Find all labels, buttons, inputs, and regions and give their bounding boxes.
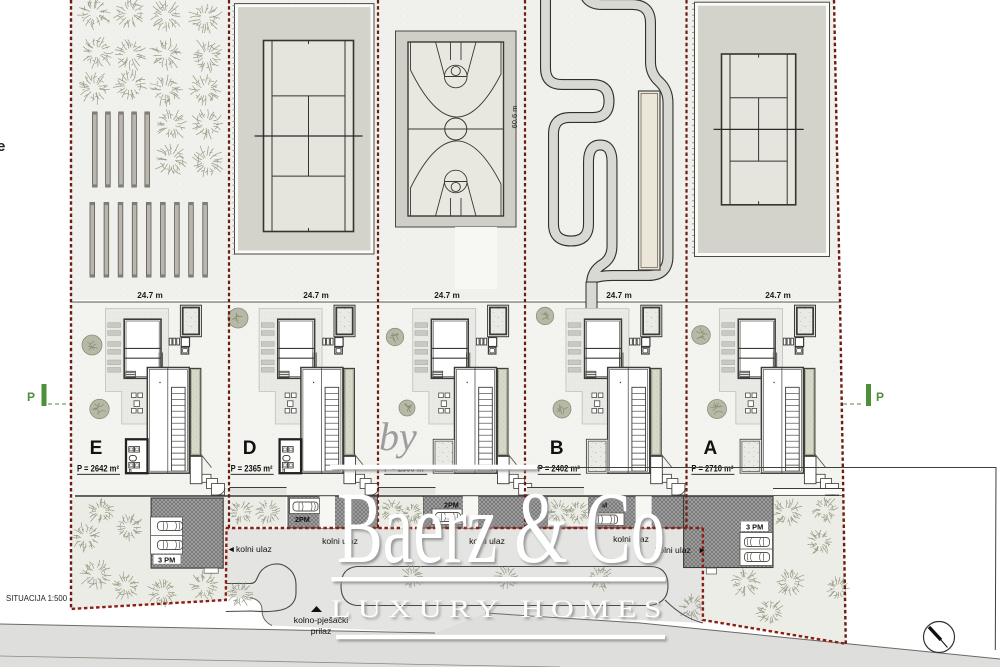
- svg-text:24.7 m: 24.7 m: [765, 291, 791, 300]
- svg-text:P: P: [27, 390, 35, 404]
- svg-text:◄: ◄: [227, 544, 236, 554]
- svg-text:SITUACIJA 1:500: SITUACIJA 1:500: [6, 594, 68, 603]
- svg-text:n: n: [282, 468, 285, 474]
- svg-text:LUXURY HOMES: LUXURY HOMES: [331, 594, 669, 623]
- svg-text:24.7 m: 24.7 m: [303, 291, 329, 300]
- svg-text:A: A: [704, 438, 718, 459]
- svg-text:24.7 m: 24.7 m: [606, 291, 632, 300]
- svg-text:P: P: [876, 390, 884, 404]
- svg-text:B: B: [550, 438, 564, 459]
- svg-text:2PM: 2PM: [295, 515, 310, 524]
- svg-text:60.6 m: 60.6 m: [510, 106, 519, 129]
- svg-text:3 PM: 3 PM: [158, 556, 175, 565]
- svg-text:prilaz: prilaz: [311, 626, 332, 636]
- svg-text:P = 2710 m²: P = 2710 m²: [691, 464, 733, 474]
- svg-text:Baerz & Co: Baerz & Co: [337, 471, 665, 585]
- svg-text:►: ►: [698, 545, 707, 555]
- svg-text:3 PM: 3 PM: [746, 523, 763, 532]
- svg-text:P = 2365 m²: P = 2365 m²: [231, 464, 273, 474]
- svg-text:by: by: [379, 414, 417, 459]
- svg-text:e: e: [0, 138, 5, 155]
- svg-text:kolni ulaz: kolni ulaz: [236, 544, 272, 554]
- svg-text:D: D: [243, 438, 257, 459]
- svg-text:24.7 m: 24.7 m: [434, 291, 460, 300]
- svg-text:24.7 m: 24.7 m: [137, 291, 163, 300]
- svg-text:E: E: [90, 438, 103, 459]
- svg-text:n: n: [129, 468, 132, 474]
- svg-text:P = 2642 m²: P = 2642 m²: [77, 464, 119, 474]
